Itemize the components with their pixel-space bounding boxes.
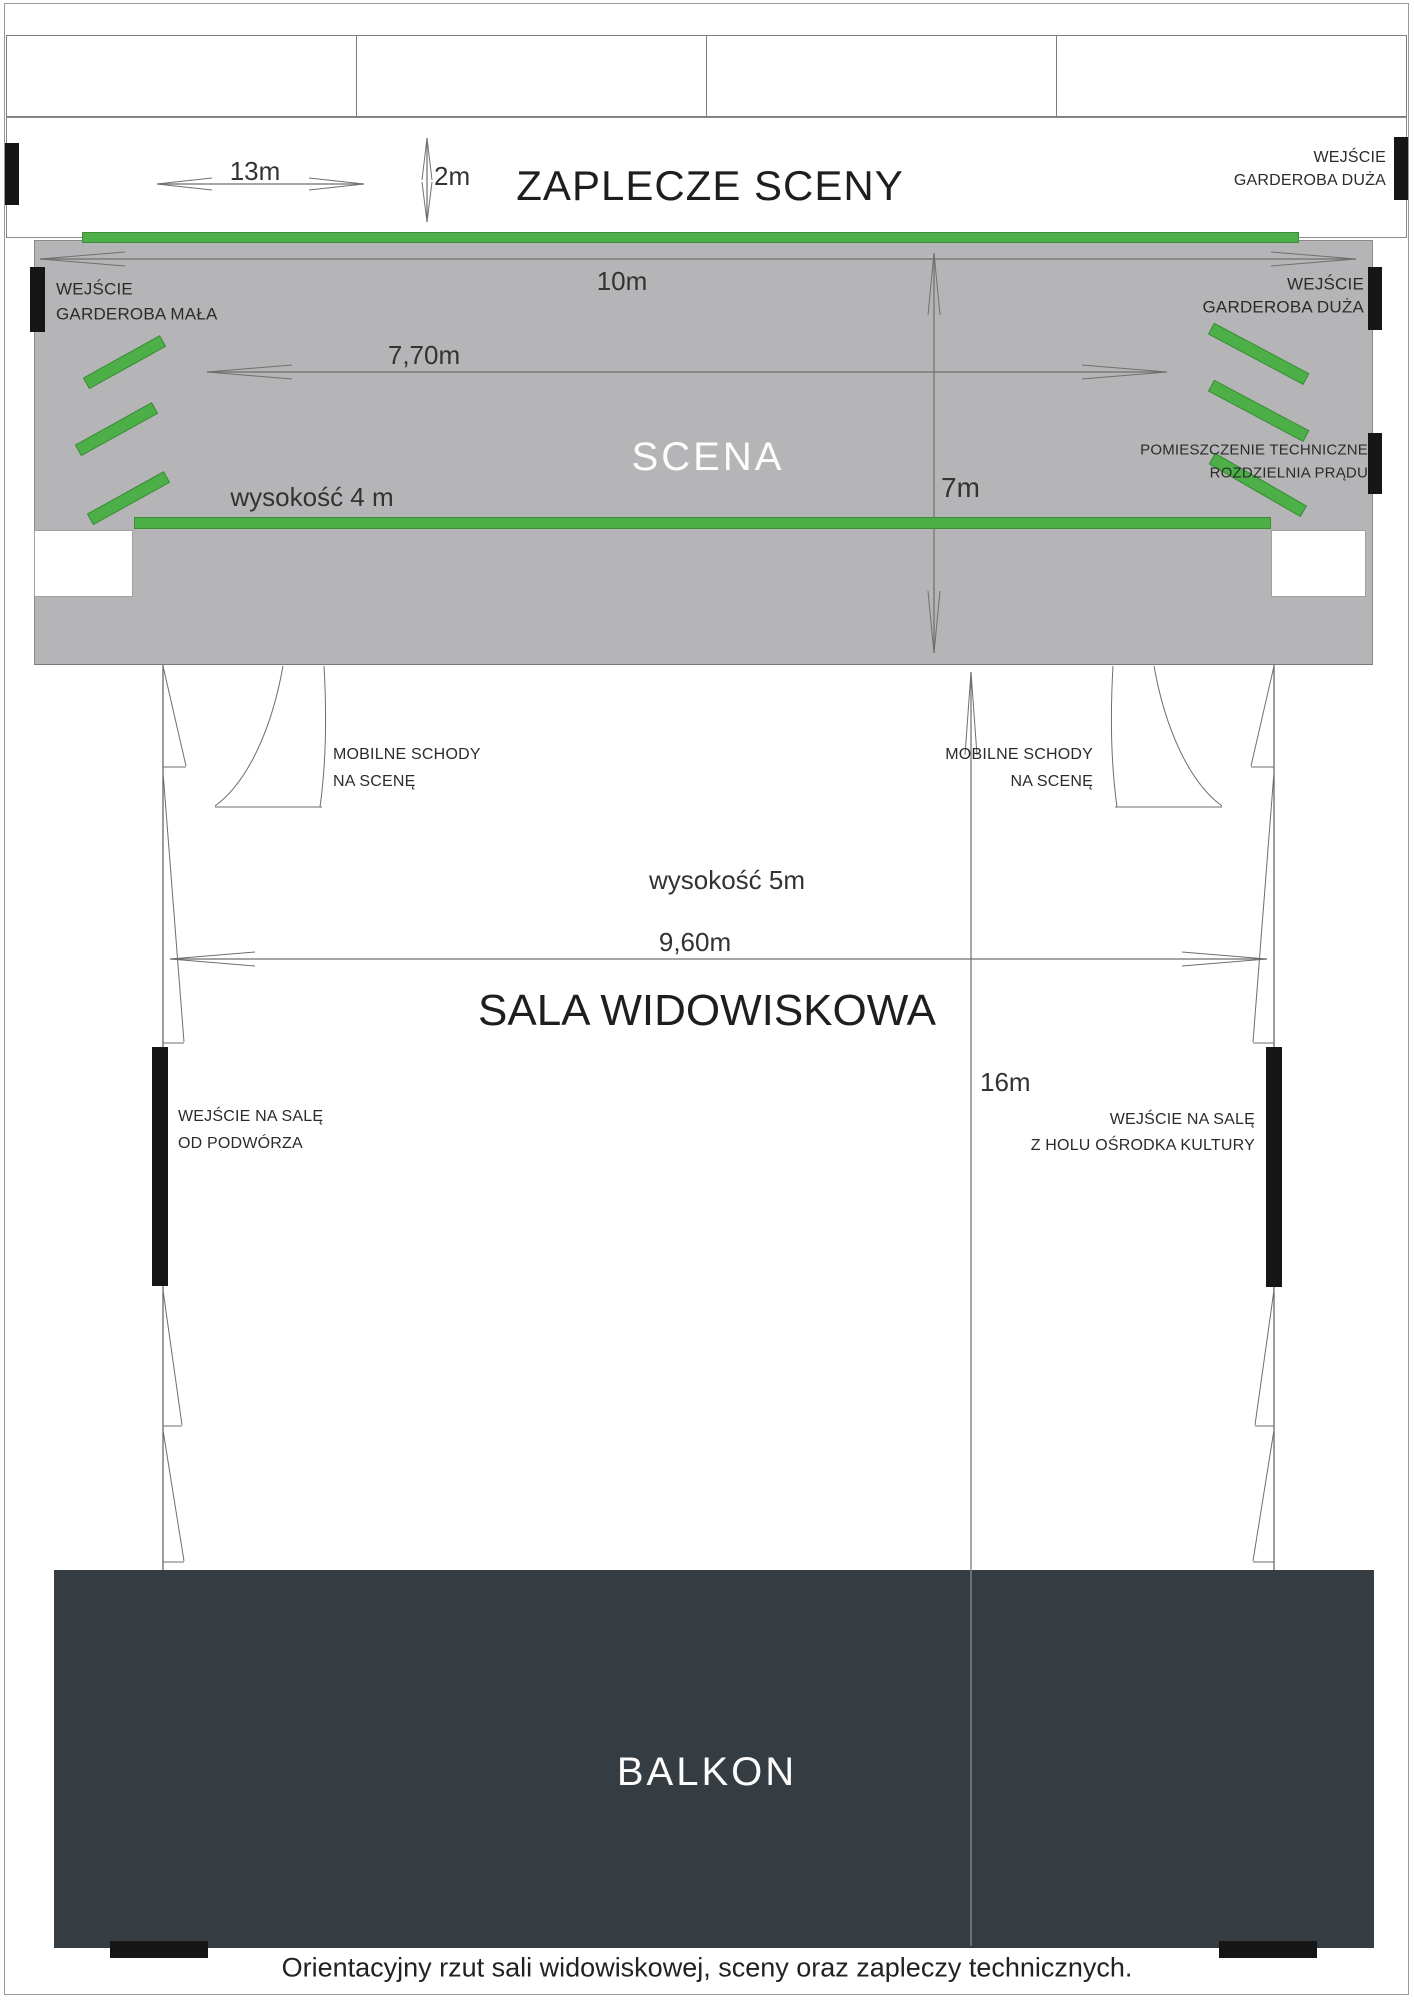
tech-room-door bbox=[1368, 433, 1382, 494]
balcony-door-left bbox=[110, 1941, 208, 1958]
hall-door-right bbox=[1266, 1047, 1282, 1287]
floorplan-page: ZAPLECZE SCENY 13m 2m WEJŚCIE GARDEROBA … bbox=[0, 0, 1414, 2000]
stairs-right-label-line2: NA SCENĘ bbox=[1010, 774, 1093, 790]
backstage-entrance-label-line2: GARDEROBA DUŻA bbox=[1234, 173, 1386, 189]
backstage-door-right bbox=[1394, 137, 1408, 200]
stage-front-curtain-bar bbox=[134, 517, 1271, 529]
hall-right-entrance-line2: Z HOLU OŚRODKA KULTURY bbox=[1031, 1138, 1255, 1154]
dim-16m-line bbox=[965, 672, 977, 1946]
tech-room-label-line2: ROZDZIELNIA PRĄDU bbox=[1210, 466, 1368, 481]
dim-2m-label: 2m bbox=[434, 163, 470, 189]
hall-height-label: wysokość 5m bbox=[649, 867, 805, 893]
backstage-title: ZAPLECZE SCENY bbox=[516, 165, 903, 207]
page-caption: Orientacyjny rzut sali widowiskowej, sce… bbox=[282, 1955, 1133, 1982]
stage-door-small-dressing bbox=[30, 267, 45, 332]
hall-walls bbox=[163, 665, 1274, 1570]
stairs-left-label-line2: NA SCENĘ bbox=[333, 774, 416, 790]
stage-right-entrance-line2: GARDEROBA DUŻA bbox=[1203, 299, 1365, 316]
stairs-left-label-line1: MOBILNE SCHODY bbox=[333, 747, 481, 763]
dim-10m-label: 10m bbox=[597, 268, 648, 294]
stage-back-curtain-bar bbox=[82, 232, 1299, 243]
stairs-right-label-line1: MOBILNE SCHODY bbox=[945, 747, 1093, 763]
hall-left-entrance-line1: WEJŚCIE NA SALĘ bbox=[178, 1109, 323, 1125]
dim-13m-label: 13m bbox=[230, 158, 281, 184]
balcony-title: BALKON bbox=[617, 1752, 797, 1792]
dim-7m-label: 7m bbox=[941, 474, 980, 502]
stairs-arc-left bbox=[215, 666, 326, 807]
stage-height-label: wysokość 4 m bbox=[230, 484, 393, 510]
hall-right-entrance-line1: WEJŚCIE NA SALĘ bbox=[1110, 1112, 1255, 1128]
stage-title: SCENA bbox=[632, 437, 785, 477]
balcony-door-right bbox=[1219, 1941, 1317, 1958]
dim-2m-line bbox=[422, 138, 432, 222]
dim-16m-label: 16m bbox=[980, 1069, 1031, 1095]
hall-door-left bbox=[152, 1047, 168, 1286]
stage-door-big-dressing bbox=[1368, 267, 1382, 330]
stage-left-entrance-line1: WEJŚCIE bbox=[56, 281, 133, 298]
stage-left-entrance-line2: GARDEROBA MAŁA bbox=[56, 306, 218, 323]
backstage-door-left bbox=[5, 143, 19, 205]
hall-title: SALA WIDOWISKOWA bbox=[478, 989, 936, 1033]
stage-right-entrance-line1: WEJŚCIE bbox=[1287, 276, 1364, 293]
dim-7m-line bbox=[928, 253, 940, 653]
dim-770m-line bbox=[207, 365, 1167, 379]
backstage-entrance-label-line1: WEJŚCIE bbox=[1313, 150, 1386, 166]
dim-960m-label: 9,60m bbox=[659, 929, 731, 955]
dim-10m-line bbox=[40, 252, 1356, 266]
tech-room-label-line1: POMIESZCZENIE TECHNICZNE bbox=[1140, 443, 1368, 458]
stairs-arc-right bbox=[1111, 666, 1222, 807]
hall-left-entrance-line2: OD PODWÓRZA bbox=[178, 1136, 303, 1152]
dim-770m-label: 7,70m bbox=[388, 342, 460, 368]
